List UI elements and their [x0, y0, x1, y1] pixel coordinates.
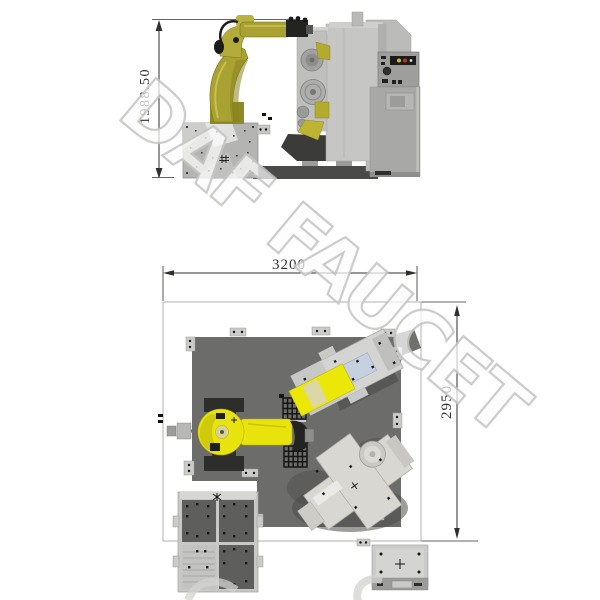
machine-foot: [302, 161, 318, 166]
indicator-light-red: [403, 59, 407, 63]
panel-assembly-plan: [173, 492, 263, 592]
pedestal-tab: [257, 125, 270, 134]
robot-cell-drawing: 1988.50: [0, 0, 600, 600]
indicator-light-yellow: [397, 59, 401, 63]
panel-knob: [383, 67, 391, 75]
robot-upper-arm: [240, 22, 290, 37]
electrical-cabinet-elevation: [370, 87, 420, 177]
robot-wrist: [286, 20, 308, 37]
control-panel-elevation: [378, 52, 419, 87]
robot-arm-plan: [240, 419, 292, 445]
machine-foot: [336, 161, 352, 166]
robot-gripper-tip: [306, 25, 313, 34]
machine-top-tab: [352, 12, 363, 26]
arrowhead-up: [156, 20, 163, 31]
indicator-light-white: [410, 59, 413, 62]
cable-connector: [167, 426, 176, 436]
cabinet-label: [375, 171, 391, 175]
drawing-canvas: 1988.50: [0, 0, 600, 600]
